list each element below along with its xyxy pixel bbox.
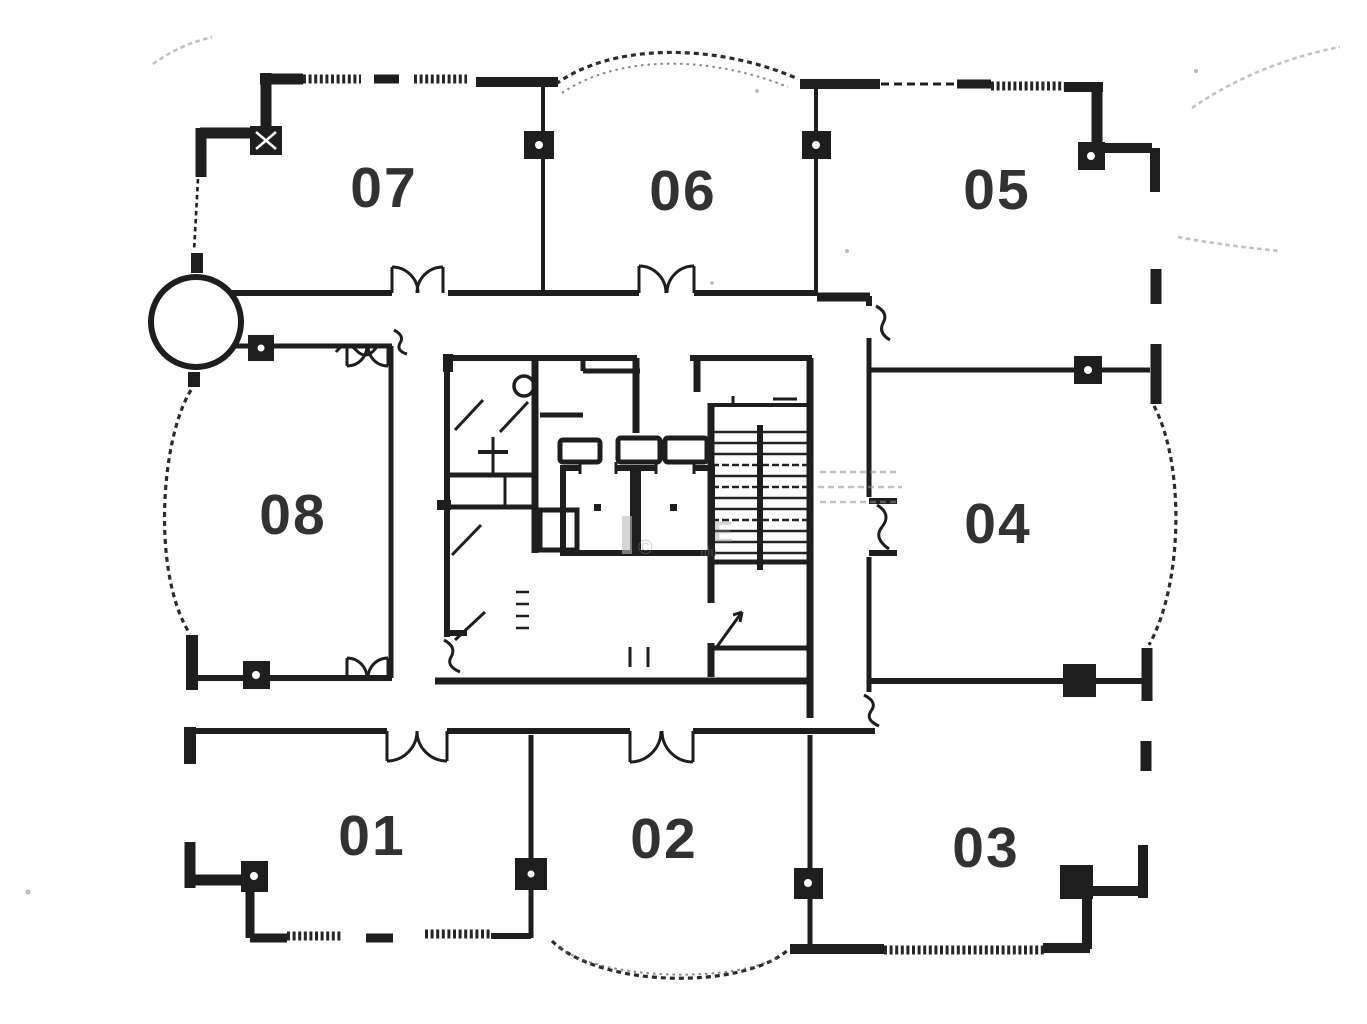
unit-label-06: 06 [649, 159, 716, 223]
elevator-sill [618, 438, 660, 462]
unit-label-08: 08 [259, 483, 326, 547]
staircase [708, 403, 902, 677]
elevator-sill [665, 438, 707, 462]
floor-plan-svg: 07 06 05 08 04 01 02 03 E © ıılıı [0, 0, 1367, 1024]
unit-label-02: 02 [630, 807, 697, 871]
elevator-sill [560, 440, 600, 462]
facade-dashed-lines [153, 37, 1340, 978]
unit-label-01: 01 [338, 804, 405, 868]
scanned-floor-plan-page: 07 06 05 08 04 01 02 03 E © ıılıı [0, 0, 1367, 1024]
unit-label-03: 03 [952, 816, 1019, 880]
unit-label-04: 04 [964, 492, 1031, 556]
elevator-bank [560, 438, 712, 553]
unit-labels: 07 06 05 08 04 01 02 03 [259, 156, 1031, 880]
unit-label-07: 07 [350, 156, 417, 220]
watermark-ticks: ıılıı [700, 544, 717, 559]
round-column [151, 277, 241, 367]
watermark-copyright: © [638, 537, 653, 559]
unit-label-05: 05 [963, 158, 1030, 222]
